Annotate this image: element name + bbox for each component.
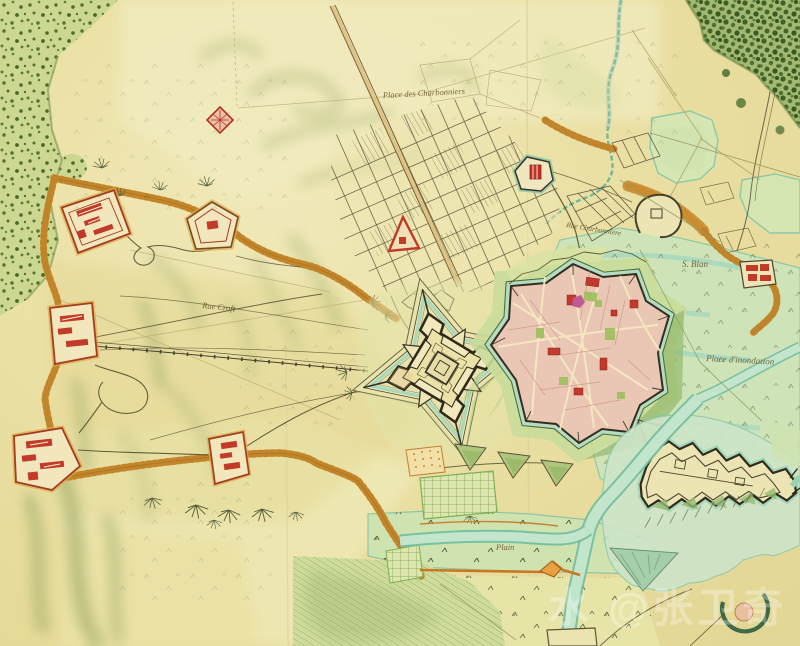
svg-text:水 @张卫奇: 水 @张卫奇 [548, 585, 787, 631]
svg-text:Plain: Plain [495, 542, 514, 552]
svg-text:S. Blan: S. Blan [682, 259, 708, 269]
